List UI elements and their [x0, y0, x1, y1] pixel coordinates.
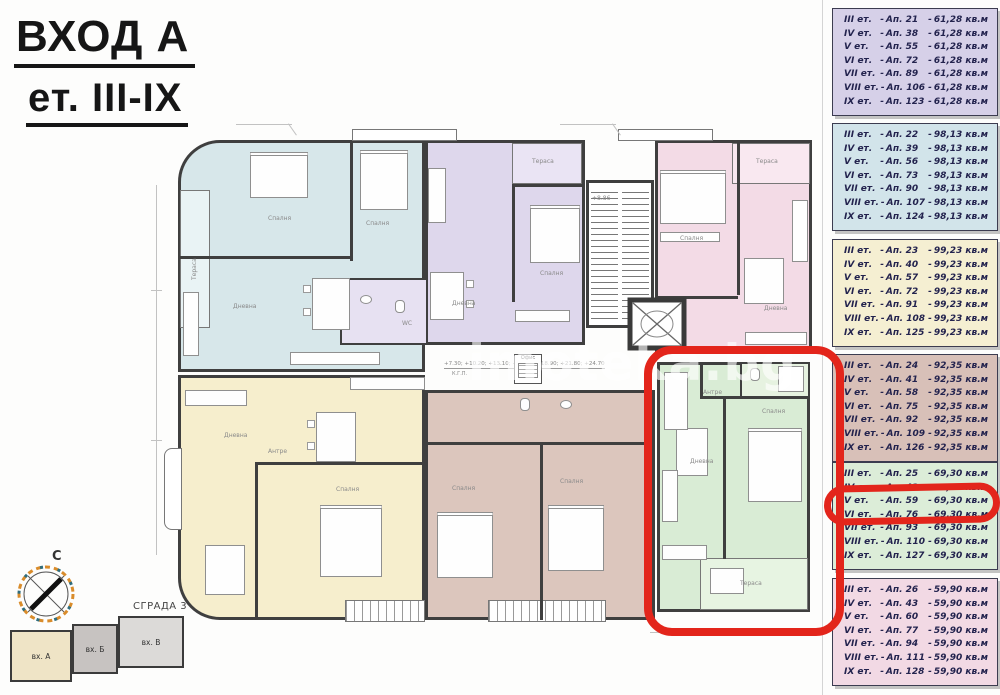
- chair: [307, 420, 315, 428]
- site-plan-title: СГРАДА 3: [133, 601, 187, 612]
- legend-dash: -: [879, 198, 887, 208]
- legend-dash: -: [878, 469, 886, 479]
- legend-apartment: Ап. 56: [886, 157, 926, 167]
- balcony-bottom-left: [345, 600, 425, 622]
- legend-dash: -: [926, 375, 934, 385]
- legend-dash: -: [878, 585, 886, 595]
- legend-apartment: Ап. 90: [886, 184, 926, 194]
- floors-subtitle: ет. III-IX: [26, 76, 188, 127]
- legend-dash: -: [878, 328, 886, 338]
- legend-dash: -: [926, 287, 934, 297]
- legend-apartment: Ап. 94: [886, 639, 926, 649]
- legend-floor: V ет.: [844, 157, 878, 167]
- legend-area: 92,35 кв.м: [934, 375, 988, 385]
- sofa: [428, 168, 446, 223]
- legend-row: VIII ет.-Ап. 107-98,13 кв.м: [844, 198, 988, 212]
- legend-floor: VIII ет.: [844, 537, 879, 547]
- highlighted-legend-row-oval: [824, 482, 1000, 526]
- legend-apartment: Ап. 127: [886, 551, 926, 561]
- legend-dash: -: [879, 429, 887, 439]
- site-block-b: вх. Б: [72, 624, 118, 674]
- legend-row: IX ет.-Ап. 124-98,13 кв.м: [844, 212, 988, 226]
- legend-dash: -: [878, 144, 886, 154]
- legend-area: 98,13 кв.м: [934, 130, 988, 140]
- legend-apartment: Ап. 125: [886, 328, 926, 338]
- legend-row: VI ет.-Ап. 73-98,13 кв.м: [844, 171, 988, 185]
- legend-floor: VII ет.: [844, 639, 878, 649]
- legend-row: III ет.-Ап. 23-99,23 кв.м: [844, 246, 988, 260]
- kitchen-counter: [350, 377, 425, 390]
- legend-row: IV ет.-Ап. 39-98,13 кв.м: [844, 144, 988, 158]
- legend-floor: VI ет.: [844, 402, 878, 412]
- dimension-line: [156, 185, 157, 555]
- legend-floor: VIII ет.: [844, 429, 879, 439]
- legend-dash: -: [878, 300, 886, 310]
- legend-dash: -: [926, 171, 934, 181]
- legend-box-99-23: III ет.-Ап. 23-99,23 кв.мIV ет.-Ап. 40-9…: [832, 239, 998, 347]
- legend-area: 98,13 кв.м: [934, 157, 988, 167]
- balcony-bottom-center: [488, 600, 606, 622]
- legend-dash: -: [926, 260, 934, 270]
- legend-row: VIII ет.-Ап. 109-92,35 кв.м: [844, 429, 988, 443]
- legend-dash: -: [878, 130, 886, 140]
- legend-area: 99,23 кв.м: [934, 246, 988, 256]
- legend-dash: -: [926, 56, 934, 66]
- legend-dash: -: [878, 246, 886, 256]
- legend-area: 61,28 кв.м: [934, 15, 988, 25]
- balcony-top-right: [618, 129, 713, 141]
- dining-table: [316, 412, 356, 462]
- legend-area: 98,13 кв.м: [934, 144, 988, 154]
- legend-floor: VII ет.: [844, 415, 878, 425]
- room-label-bedroom: Спалня: [366, 220, 389, 227]
- legend-floor: IX ет.: [844, 667, 878, 677]
- legend-floor: IV ет.: [844, 599, 878, 609]
- legend-dash: -: [878, 15, 886, 25]
- legend-row: IV ет.-Ап. 41-92,35 кв.м: [844, 375, 988, 389]
- legend-area: 98,13 кв.м: [934, 212, 988, 222]
- room-label-bedroom: Спалня: [268, 215, 291, 222]
- room-label-bedroom: Спалня: [452, 485, 475, 492]
- legend-floor: IX ет.: [844, 551, 878, 561]
- kitchen-counter: [290, 352, 380, 365]
- legend-row: IX ет.-Ап. 125-99,23 кв.м: [844, 328, 988, 342]
- legend-apartment: Ап. 108: [887, 314, 927, 324]
- legend-row: V ет.-Ап. 58-92,35 кв.м: [844, 388, 988, 402]
- legend-dash: -: [926, 328, 934, 338]
- legend-apartment: Ап. 72: [886, 287, 926, 297]
- entrance-title: ВХОД А: [14, 12, 195, 68]
- legend-floor: III ет.: [844, 15, 878, 25]
- legend-floor: IX ет.: [844, 212, 878, 222]
- stairs-level-label: +8.86: [592, 195, 610, 202]
- wall: [180, 256, 352, 259]
- legend-apartment: Ап. 91: [886, 300, 926, 310]
- dining-table: [744, 258, 784, 304]
- legend-apartment: Ап. 21: [886, 15, 926, 25]
- legend-row: VIII ет.-Ап. 108-99,23 кв.м: [844, 314, 988, 328]
- room-label-bedroom: Спалня: [680, 235, 703, 242]
- wall: [512, 187, 515, 302]
- room-label-terrace: Тераса: [191, 258, 198, 280]
- legend-area: 61,28 кв.м: [934, 56, 988, 66]
- legend-dash: -: [926, 443, 934, 453]
- legend-dash: -: [926, 415, 934, 425]
- legend-floor: IV ет.: [844, 144, 878, 154]
- legend-apartment: Ап. 24: [886, 361, 926, 371]
- legend-floor: III ет.: [844, 130, 878, 140]
- legend-row: III ет.-Ап. 22-98,13 кв.м: [844, 130, 988, 144]
- legend-dash: -: [926, 537, 934, 547]
- legend-row: VII ет.-Ап. 91-99,23 кв.м: [844, 300, 988, 314]
- legend-apartment: Ап. 38: [886, 29, 926, 39]
- legend-area: 98,13 кв.м: [934, 184, 988, 194]
- legend-dash: -: [878, 212, 886, 222]
- legend-area: 92,35 кв.м: [934, 415, 988, 425]
- legend-apartment: Ап. 75: [886, 402, 926, 412]
- legend-apartment: Ап. 109: [887, 429, 927, 439]
- bed: [320, 505, 382, 577]
- legend-area: 59,90 кв.м: [934, 585, 988, 595]
- wall: [540, 445, 543, 620]
- sink-fixture: [360, 295, 372, 304]
- legend-row: VII ет.-Ап. 93-69,30 кв.м: [844, 523, 988, 537]
- legend-dash: -: [926, 639, 934, 649]
- legend-dash: -: [878, 612, 886, 622]
- legend-dash: -: [878, 667, 886, 677]
- wardrobe: [515, 310, 570, 322]
- legend-apartment: Ап. 107: [887, 198, 927, 208]
- legend-area: 99,23 кв.м: [934, 287, 988, 297]
- balcony-top-left: [352, 129, 457, 141]
- legend-area: 92,35 кв.м: [934, 429, 988, 439]
- legend-row: III ет.-Ап. 21-61,28 кв.м: [844, 15, 988, 29]
- legend-floor: III ет.: [844, 585, 878, 595]
- legend-dash: -: [878, 97, 886, 107]
- room-label-bedroom: Спалня: [336, 486, 359, 493]
- legend-row: VI ет.-Ап. 77-59,90 кв.м: [844, 626, 988, 640]
- legend-row: IX ет.-Ап. 127-69,30 кв.м: [844, 551, 988, 565]
- legend-dash: -: [878, 29, 886, 39]
- legend-floor: III ет.: [844, 469, 878, 479]
- legend-floor: V ет.: [844, 42, 878, 52]
- legend-area: 59,90 кв.м: [934, 653, 988, 663]
- legend-dash: -: [878, 69, 886, 79]
- legend-floor: V ет.: [844, 273, 878, 283]
- legend-dash: -: [878, 375, 886, 385]
- legend-apartment: Ап. 39: [886, 144, 926, 154]
- room-label-living: Дневна: [224, 432, 247, 439]
- legend-row: V ет.-Ап. 57-99,23 кв.м: [844, 273, 988, 287]
- highlighted-apartment-outline: [644, 346, 844, 636]
- bed: [360, 150, 408, 210]
- legend-area: 59,90 кв.м: [934, 599, 988, 609]
- wall: [255, 462, 425, 465]
- legend-dash: -: [926, 42, 934, 52]
- room-label-hall: Антре: [268, 448, 287, 455]
- kgp-label: К.Г.П.: [452, 371, 467, 377]
- legend-floor: VII ет.: [844, 69, 878, 79]
- legend-apartment: Ап. 57: [886, 273, 926, 283]
- room-label-terrace: Тераса: [756, 158, 778, 165]
- legend-row: III ет.-Ап. 24-92,35 кв.м: [844, 361, 988, 375]
- legend-dash: -: [879, 537, 887, 547]
- annotation-leader: [560, 124, 616, 125]
- annotation-leader: [236, 124, 292, 125]
- legend-dash: -: [926, 97, 934, 107]
- bed: [548, 505, 604, 571]
- legend-area: 69,30 кв.м: [934, 523, 988, 533]
- legend-apartment: Ап. 126: [886, 443, 926, 453]
- legend-dash: -: [926, 469, 934, 479]
- legend-area: 99,23 кв.м: [934, 328, 988, 338]
- legend-row: VIII ет.-Ап. 110-69,30 кв.м: [844, 537, 988, 551]
- legend-area: 98,13 кв.м: [934, 198, 988, 208]
- legend-dash: -: [926, 130, 934, 140]
- legend-row: III ет.-Ап. 26-59,90 кв.м: [844, 585, 988, 599]
- legend-dash: -: [926, 198, 934, 208]
- legend-floor: VIII ет.: [844, 314, 879, 324]
- legend-floor: VII ет.: [844, 300, 878, 310]
- room-label-bedroom: Спалня: [560, 478, 583, 485]
- legend-dash: -: [878, 639, 886, 649]
- legend-dash: -: [926, 29, 934, 39]
- compass: С: [10, 546, 84, 630]
- legend-dash: -: [926, 388, 934, 398]
- legend-floor: VI ет.: [844, 171, 878, 181]
- legend-apartment: Ап. 23: [886, 246, 926, 256]
- legend-area: 59,90 кв.м: [934, 612, 988, 622]
- legend-area: 99,23 кв.м: [934, 273, 988, 283]
- room-label-living: Дневна: [233, 303, 256, 310]
- bathroom-block: [340, 278, 428, 345]
- legend-area: 59,90 кв.м: [934, 639, 988, 649]
- legend-area: 69,30 кв.м: [934, 537, 988, 547]
- room-label-living: Дневна: [452, 300, 475, 307]
- legend-floor: VIII ет.: [844, 83, 879, 93]
- legend-apartment: Ап. 58: [886, 388, 926, 398]
- legend-apartment: Ап. 41: [886, 375, 926, 385]
- bed: [660, 170, 726, 224]
- legend-area: 99,23 кв.м: [934, 260, 988, 270]
- legend-box-98-13: III ет.-Ап. 22-98,13 кв.мIV ет.-Ап. 39-9…: [832, 123, 998, 231]
- legend-dash: -: [926, 667, 934, 677]
- legend-dash: -: [878, 260, 886, 270]
- legend-floor: VI ет.: [844, 287, 878, 297]
- wardrobe: [205, 545, 245, 595]
- compass-north-label: С: [52, 549, 62, 564]
- toilet-fixture: [395, 300, 405, 313]
- dimension-tick: [151, 440, 162, 441]
- room-label-living: Дневна: [764, 305, 787, 312]
- legend-floor: IX ет.: [844, 328, 878, 338]
- legend-area: 61,28 кв.м: [934, 97, 988, 107]
- chair: [303, 285, 311, 293]
- legend-floor: VI ет.: [844, 626, 878, 636]
- legend-area: 92,35 кв.м: [934, 443, 988, 453]
- legend-floor: V ет.: [844, 612, 878, 622]
- legend-dash: -: [926, 626, 934, 636]
- legend-floor: III ет.: [844, 361, 878, 371]
- legend-dash: -: [926, 15, 934, 25]
- legend-area: 69,30 кв.м: [934, 551, 988, 561]
- legend-row: IV ет.-Ап. 43-59,90 кв.м: [844, 599, 988, 613]
- site-block-v: вх. В: [118, 616, 184, 668]
- floorplan-sheet: { "title": { "line1": "ВХОД А", "line2":…: [0, 0, 1000, 695]
- legend-dash: -: [926, 361, 934, 371]
- toilet-fixture: [520, 398, 530, 411]
- legend-floor: VIII ет.: [844, 198, 879, 208]
- annotation-leader: [288, 123, 297, 135]
- legend-area: 61,28 кв.м: [934, 42, 988, 52]
- legend-dash: -: [926, 246, 934, 256]
- legend-box-61-28: III ет.-Ап. 21-61,28 кв.мIV ет.-Ап. 38-6…: [832, 8, 998, 116]
- legend-dash: -: [926, 653, 934, 663]
- legend-row: IX ет.-Ап. 126-92,35 кв.м: [844, 443, 988, 457]
- legend-dash: -: [879, 83, 887, 93]
- legend-dash: -: [878, 171, 886, 181]
- legend-dash: -: [926, 273, 934, 283]
- legend-apartment: Ап. 55: [886, 42, 926, 52]
- legend-apartment: Ап. 93: [886, 523, 926, 533]
- legend-apartment: Ап. 26: [886, 585, 926, 595]
- legend-dash: -: [878, 415, 886, 425]
- legend-apartment: Ап. 40: [886, 260, 926, 270]
- legend-floor: IX ет.: [844, 443, 878, 453]
- room-label-bedroom: Спалня: [540, 270, 563, 277]
- chair: [303, 308, 311, 316]
- site-block-b-label: вх. Б: [86, 645, 105, 654]
- legend-dash: -: [878, 42, 886, 52]
- legend-row: IX ет.-Ап. 128-59,90 кв.м: [844, 667, 988, 681]
- site-block-v-label: вх. В: [142, 638, 161, 647]
- room-label-terrace: Тераса: [532, 158, 554, 165]
- legend-apartment: Ап. 60: [886, 612, 926, 622]
- legend-floor: VII ет.: [844, 184, 878, 194]
- sink-fixture: [560, 400, 572, 409]
- legend-apartment: Ап. 106: [887, 83, 927, 93]
- legend-floor: IV ет.: [844, 29, 878, 39]
- bed: [530, 205, 580, 263]
- legend-area: 61,28 кв.м: [934, 69, 988, 79]
- legend-area: 92,35 кв.м: [934, 402, 988, 412]
- legend-row: VI ет.-Ап. 72-61,28 кв.м: [844, 56, 988, 70]
- legend-area: 99,23 кв.м: [934, 300, 988, 310]
- legend-row: IV ет.-Ап. 38-61,28 кв.м: [844, 29, 988, 43]
- legend-row: III ет.-Ап. 25-69,30 кв.м: [844, 469, 988, 483]
- legend-dash: -: [926, 429, 934, 439]
- legend-dash: -: [926, 585, 934, 595]
- legend-apartment: Ап. 22: [886, 130, 926, 140]
- legend-row: VIII ет.-Ап. 111-59,90 кв.м: [844, 653, 988, 667]
- dining-table: [430, 272, 464, 320]
- sofa: [185, 390, 247, 406]
- sofa: [792, 200, 808, 262]
- legend-apartment: Ап. 72: [886, 56, 926, 66]
- legend-row: V ет.-Ап. 60-59,90 кв.м: [844, 612, 988, 626]
- legend-dash: -: [878, 388, 886, 398]
- legend-dash: -: [879, 653, 887, 663]
- legend-dash: -: [878, 443, 886, 453]
- legend-row: VI ет.-Ап. 75-92,35 кв.м: [844, 402, 988, 416]
- chair: [466, 280, 474, 288]
- wall: [255, 465, 258, 620]
- legend-dash: -: [926, 184, 934, 194]
- wall: [737, 143, 740, 295]
- legend-row: VIII ет.-Ап. 106-61,28 кв.м: [844, 83, 988, 97]
- legend-apartment: Ап. 89: [886, 69, 926, 79]
- legend-dash: -: [926, 314, 934, 324]
- legend-row: VII ет.-Ап. 90-98,13 кв.м: [844, 184, 988, 198]
- legend-area: 69,30 кв.м: [934, 469, 988, 479]
- legend-row: IX ет.-Ап. 123-61,28 кв.м: [844, 97, 988, 111]
- legend-row: VI ет.-Ап. 72-99,23 кв.м: [844, 287, 988, 301]
- site-block-a-label: вх. А: [32, 652, 51, 661]
- legend-area: 61,28 кв.м: [934, 83, 988, 93]
- chair: [307, 442, 315, 450]
- legend-row: V ет.-Ап. 55-61,28 кв.м: [844, 42, 988, 56]
- legend-apartment: Ап. 92: [886, 415, 926, 425]
- legend-apartment: Ап. 111: [887, 653, 927, 663]
- legend-dash: -: [926, 144, 934, 154]
- legend-apartment: Ап. 124: [886, 212, 926, 222]
- legend-row: IV ет.-Ап. 40-99,23 кв.м: [844, 260, 988, 274]
- legend-dash: -: [926, 551, 934, 561]
- sofa: [183, 292, 199, 356]
- legend-dash: -: [878, 157, 886, 167]
- legend-floor: IV ет.: [844, 260, 878, 270]
- legend-row: VII ет.-Ап. 89-61,28 кв.м: [844, 69, 988, 83]
- legend-apartment: Ап. 73: [886, 171, 926, 181]
- legend-dash: -: [878, 361, 886, 371]
- legend-apartment: Ап. 128: [886, 667, 926, 677]
- legend-area: 92,35 кв.м: [934, 388, 988, 398]
- legend-area: 59,90 кв.м: [934, 667, 988, 677]
- bed: [250, 152, 308, 198]
- legend-dash: -: [878, 273, 886, 283]
- legend-floor: VI ет.: [844, 56, 878, 66]
- legend-apartment: Ап. 110: [887, 537, 927, 547]
- legend-floor: V ет.: [844, 388, 878, 398]
- stair-flight: [591, 187, 618, 321]
- legend-apartment: Ап. 77: [886, 626, 926, 636]
- site-block-a: вх. А: [10, 630, 72, 682]
- legend-box-59-90: III ет.-Ап. 26-59,90 кв.мIV ет.-Ап. 43-5…: [832, 578, 998, 686]
- legend-dash: -: [879, 314, 887, 324]
- legend-dash: -: [926, 599, 934, 609]
- legend-area: 59,90 кв.м: [934, 626, 988, 636]
- legend-dash: -: [926, 157, 934, 167]
- legend-dash: -: [926, 300, 934, 310]
- bay-window: [164, 448, 182, 530]
- legend-dash: -: [926, 402, 934, 412]
- legend-dash: -: [926, 69, 934, 79]
- legend-row: VII ет.-Ап. 92-92,35 кв.м: [844, 415, 988, 429]
- legend-dash: -: [878, 287, 886, 297]
- legend-dash: -: [878, 551, 886, 561]
- legend-dash: -: [878, 56, 886, 66]
- legend-area: 99,23 кв.м: [934, 314, 988, 324]
- legend-area: 92,35 кв.м: [934, 361, 988, 371]
- legend-floor: IV ет.: [844, 375, 878, 385]
- legend-dash: -: [926, 523, 934, 533]
- legend-floor: III ет.: [844, 246, 878, 256]
- legend-dash: -: [926, 83, 934, 93]
- legend-apartment: Ап. 25: [886, 469, 926, 479]
- legend-row: V ет.-Ап. 56-98,13 кв.м: [844, 157, 988, 171]
- wall: [350, 143, 353, 261]
- legend-dash: -: [878, 402, 886, 412]
